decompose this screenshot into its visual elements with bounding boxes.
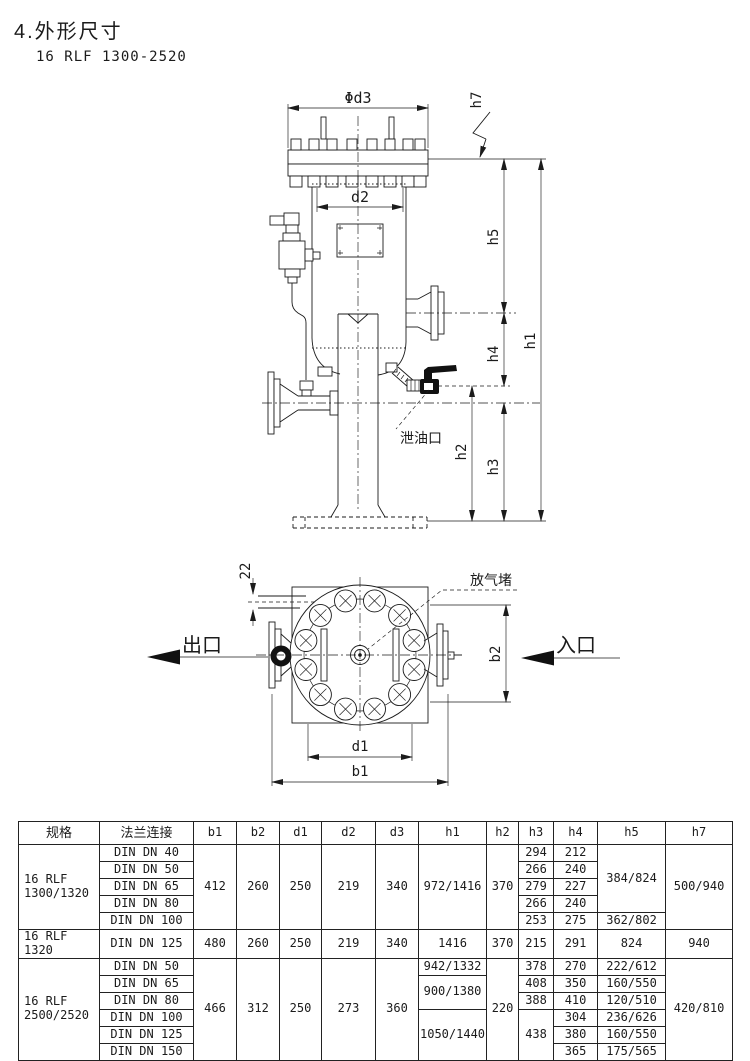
- table-cell: 275: [554, 913, 598, 930]
- table-cell: 370: [487, 845, 519, 930]
- table-cell: 1416: [419, 930, 487, 959]
- table-cell: DIN DN 80: [100, 896, 194, 913]
- top-view-drawing: 22: [147, 563, 620, 786]
- inlet-arrow-icon: [521, 651, 554, 666]
- table-cell: 340: [376, 930, 419, 959]
- table-cell: 253: [519, 913, 554, 930]
- drain-valve: [386, 363, 510, 394]
- table-cell: 412: [194, 845, 237, 930]
- dim-label-b2: b2: [488, 646, 504, 663]
- table-cell: DIN DN 125: [100, 930, 194, 959]
- table-cell: DIN DN 65: [100, 975, 194, 992]
- table-cell: 236/626: [598, 1009, 666, 1026]
- table-cell: 365: [554, 1043, 598, 1060]
- table-cell: DIN DN 125: [100, 1026, 194, 1043]
- column-header: h4: [554, 822, 598, 845]
- table-cell: 350: [554, 975, 598, 992]
- page: { "page": { "title": "4.外形尺寸", "model": …: [0, 0, 750, 1057]
- outlet-label: 出口: [182, 634, 222, 657]
- table-cell: 824: [598, 930, 666, 959]
- table-cell: 273: [322, 958, 376, 1060]
- dim-label-h1: h1: [523, 333, 539, 350]
- table-cell: 120/510: [598, 992, 666, 1009]
- dim-label-h5: h5: [486, 229, 502, 246]
- table-cell: 942/1332: [419, 958, 487, 975]
- table-cell: 250: [280, 958, 322, 1060]
- column-header: d1: [280, 822, 322, 845]
- table-cell: DIN DN 50: [100, 958, 194, 975]
- inlet-flow: 入口: [521, 635, 620, 666]
- table-cell: 215: [519, 930, 554, 959]
- table-cell: 266: [519, 862, 554, 879]
- table-cell: DIN DN 100: [100, 913, 194, 930]
- table-cell: 466: [194, 958, 237, 1060]
- table-cell: 380: [554, 1026, 598, 1043]
- table-header: 规格法兰连接b1b2d1d2d3h1h2h3h4h5h7: [19, 822, 733, 845]
- table-cell: 360: [376, 958, 419, 1060]
- table-cell: 940: [666, 930, 733, 959]
- dim-d2: d2: [317, 188, 403, 212]
- table-cell: 370: [487, 930, 519, 959]
- column-header: d3: [376, 822, 419, 845]
- table-cell: 312: [237, 958, 280, 1060]
- table-cell: 420/810: [666, 958, 733, 1060]
- table-cell: 266: [519, 896, 554, 913]
- table-row: 16 RLF 2500/2520DIN DN 50466312250273360…: [19, 958, 733, 975]
- table-cell: 304: [554, 1009, 598, 1026]
- table-cell: 294: [519, 845, 554, 862]
- table-cell: 384/824: [598, 845, 666, 913]
- dim-label-d2: d2: [351, 188, 369, 206]
- table-cell: 219: [322, 845, 376, 930]
- table-cell: 227: [554, 879, 598, 896]
- table-cell: 222/612: [598, 958, 666, 975]
- table-cell: 16 RLF 1320: [19, 930, 100, 959]
- table-cell: 250: [280, 930, 322, 959]
- table-cell: 212: [554, 845, 598, 862]
- table-cell: 900/1380: [419, 975, 487, 1009]
- table-cell: 279: [519, 879, 554, 896]
- table-cell: 1050/1440: [419, 1009, 487, 1060]
- table-cell: 16 RLF 1300/1320: [19, 845, 100, 930]
- table-cell: 408: [519, 975, 554, 992]
- column-header: h1: [419, 822, 487, 845]
- nameplate: [337, 224, 383, 257]
- dim-label-d1: d1: [352, 739, 369, 755]
- vent-plug-label: 放气堵: [470, 572, 512, 588]
- column-header: h5: [598, 822, 666, 845]
- table-cell: DIN DN 100: [100, 1009, 194, 1026]
- outlet-flow: 出口: [147, 634, 268, 665]
- drain-valve-top: [274, 649, 289, 664]
- table-cell: 219: [322, 930, 376, 959]
- table-row: 16 RLF 1320DIN DN 1254802602502193401416…: [19, 930, 733, 959]
- table-row: 16 RLF 1300/1320DIN DN 40412260250219340…: [19, 845, 733, 862]
- column-header: b1: [194, 822, 237, 845]
- dim-label-h4: h4: [486, 346, 502, 363]
- table-cell: 972/1416: [419, 845, 487, 930]
- side-view-drawing: Φd3 d2: [262, 89, 546, 528]
- drain-port-callout: 泄油口: [396, 390, 442, 446]
- table-cell: 220: [487, 958, 519, 1060]
- table-cell: 260: [237, 845, 280, 930]
- dim-label-22: 22: [238, 563, 254, 580]
- drain-port-label: 泄油口: [400, 430, 442, 446]
- table-cell: 388: [519, 992, 554, 1009]
- table-cell: 410: [554, 992, 598, 1009]
- dim-label-h3: h3: [486, 459, 502, 476]
- table-cell: 378: [519, 958, 554, 975]
- table-cell: 240: [554, 862, 598, 879]
- table-cell: 160/550: [598, 1026, 666, 1043]
- column-header: 法兰连接: [100, 822, 194, 845]
- table-cell: 291: [554, 930, 598, 959]
- column-header: b2: [237, 822, 280, 845]
- table-cell: 362/802: [598, 913, 666, 930]
- valve-handle: [424, 365, 457, 380]
- base-plate: [293, 517, 546, 528]
- column-header: h7: [666, 822, 733, 845]
- outlet-arrow-icon: [147, 650, 180, 665]
- column-header: h2: [487, 822, 519, 845]
- column-header: 规格: [19, 822, 100, 845]
- table-cell: DIN DN 80: [100, 992, 194, 1009]
- table-cell: 438: [519, 1009, 554, 1060]
- table-cell: 270: [554, 958, 598, 975]
- dim-label-d3: Φd3: [344, 89, 371, 107]
- dimension-table: 规格法兰连接b1b2d1d2d3h1h2h3h4h5h7 16 RLF 1300…: [18, 821, 733, 1061]
- pressure-indicator-assembly: [270, 213, 320, 396]
- column-header: d2: [322, 822, 376, 845]
- table-cell: DIN DN 50: [100, 862, 194, 879]
- column-header: h3: [519, 822, 554, 845]
- technical-drawing: Φd3 d2: [0, 0, 750, 812]
- dim-label-b1: b1: [352, 764, 369, 780]
- inlet-label: 入口: [556, 635, 596, 657]
- table-cell: DIN DN 40: [100, 845, 194, 862]
- height-dimensions: h7 h5 h4 h3 h2 h1: [428, 92, 546, 521]
- table-cell: 480: [194, 930, 237, 959]
- table-cell: 260: [237, 930, 280, 959]
- inlet-nozzle: [406, 286, 516, 340]
- table-cell: 500/940: [666, 845, 733, 930]
- table-cell: 340: [376, 845, 419, 930]
- table-cell: 175/565: [598, 1043, 666, 1060]
- table-cell: DIN DN 150: [100, 1043, 194, 1060]
- table-cell: 240: [554, 896, 598, 913]
- table-cell: 160/550: [598, 975, 666, 992]
- table-cell: DIN DN 65: [100, 879, 194, 896]
- table-body: 16 RLF 1300/1320DIN DN 40412260250219340…: [19, 845, 733, 1061]
- standpipe: [331, 314, 385, 517]
- table-cell: 16 RLF 2500/2520: [19, 958, 100, 1060]
- table-cell: 250: [280, 845, 322, 930]
- dim-label-h2: h2: [454, 444, 470, 461]
- dim-label-h7: h7: [469, 92, 485, 109]
